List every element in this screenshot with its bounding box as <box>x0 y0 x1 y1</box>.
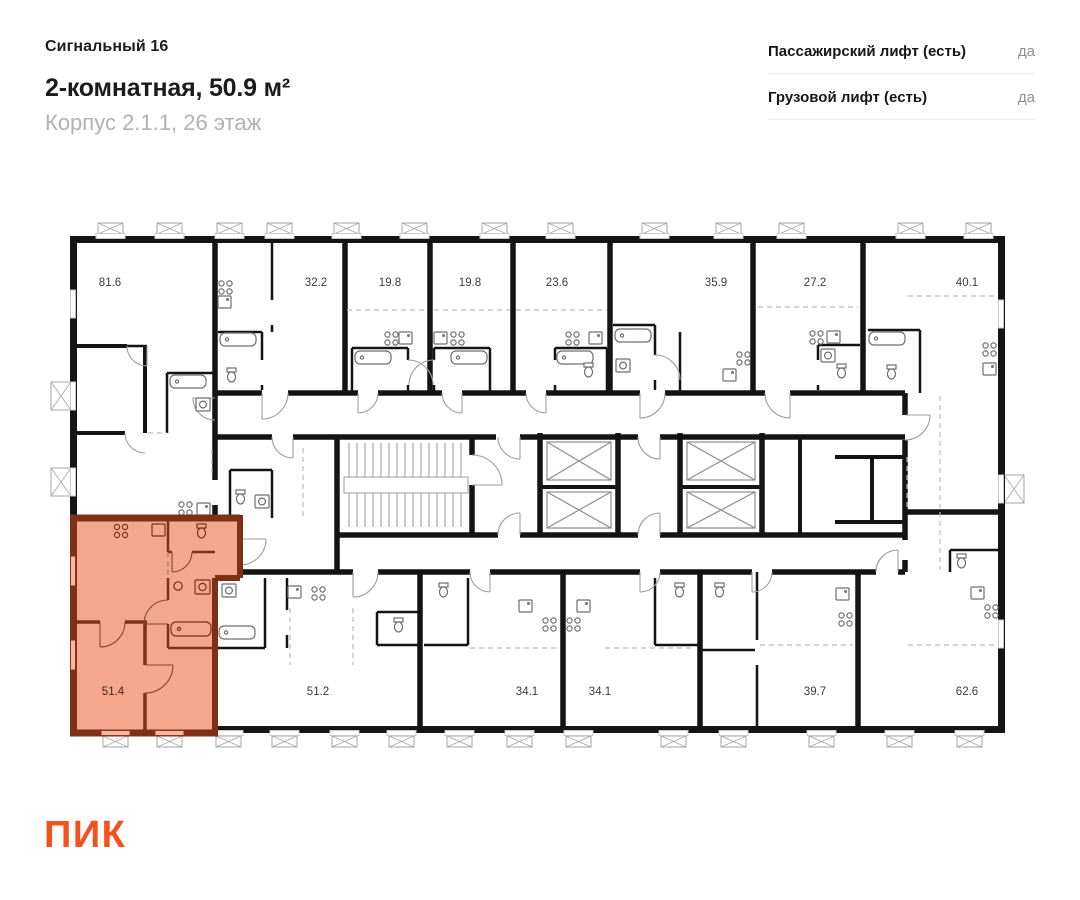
highlighted-apartment[interactable] <box>70 515 240 736</box>
door-arcs <box>125 346 930 597</box>
stair-core <box>344 443 468 527</box>
unit-area-label: 23.6 <box>546 277 568 289</box>
unit-area-label: 32.2 <box>305 277 327 289</box>
unit-area-label: 39.7 <box>804 686 826 698</box>
pik-logo[interactable]: ПИК <box>44 814 126 857</box>
unit-area-label: 34.1 <box>516 686 538 698</box>
unit-area-label: 40.1 <box>956 277 978 289</box>
unit-area-label: 51.2 <box>307 686 329 698</box>
unit-area-label: 81.6 <box>99 277 121 289</box>
floor-plan: 81.6 32.2 19.8 19.8 23.6 35.9 27.2 40.1 … <box>0 0 1080 900</box>
unit-area-label: 62.6 <box>956 686 978 698</box>
highlighted-unit-area-label: 51.4 <box>102 686 125 698</box>
unit-area-label: 35.9 <box>705 277 727 289</box>
unit-area-label: 19.8 <box>459 277 481 289</box>
unit-area-label: 27.2 <box>804 277 826 289</box>
unit-area-label: 19.8 <box>379 277 401 289</box>
unit-area-label: 34.1 <box>589 686 611 698</box>
